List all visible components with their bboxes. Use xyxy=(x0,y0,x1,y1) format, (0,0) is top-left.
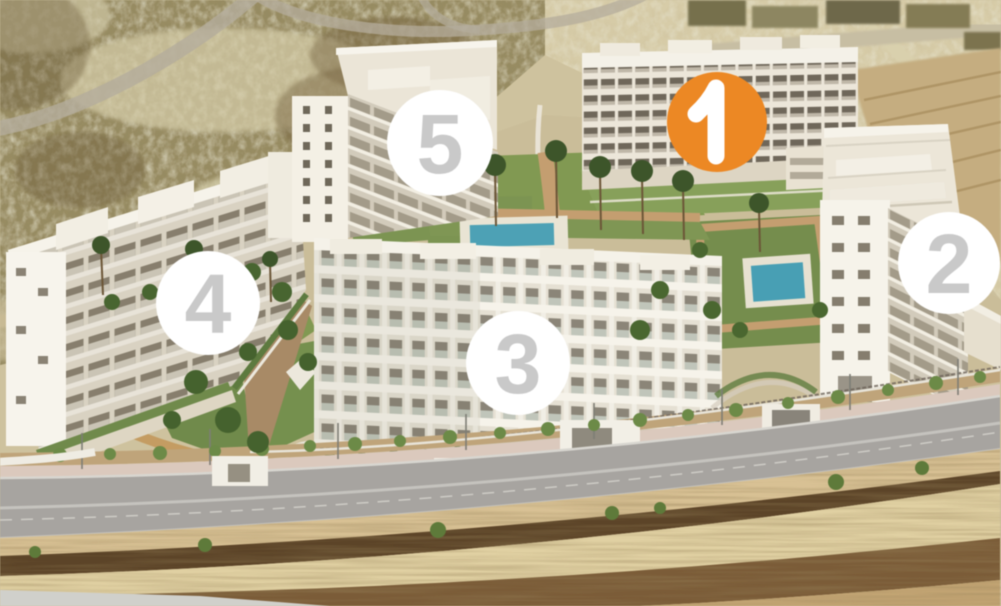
svg-text:2: 2 xyxy=(926,217,973,311)
svg-text:3: 3 xyxy=(495,317,542,411)
svg-text:5: 5 xyxy=(417,97,464,191)
svg-text:4: 4 xyxy=(185,257,232,351)
